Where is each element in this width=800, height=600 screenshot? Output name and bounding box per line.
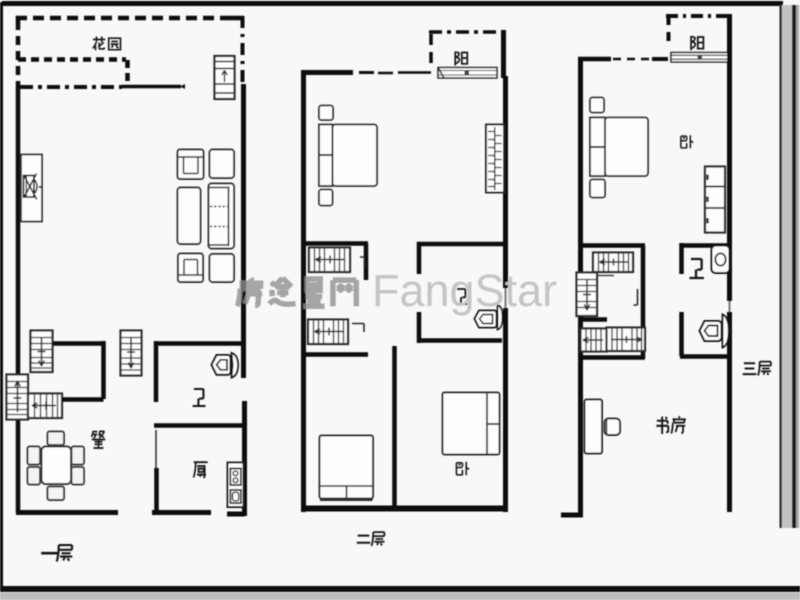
svg-text:FangStar: FangStar bbox=[372, 265, 557, 316]
